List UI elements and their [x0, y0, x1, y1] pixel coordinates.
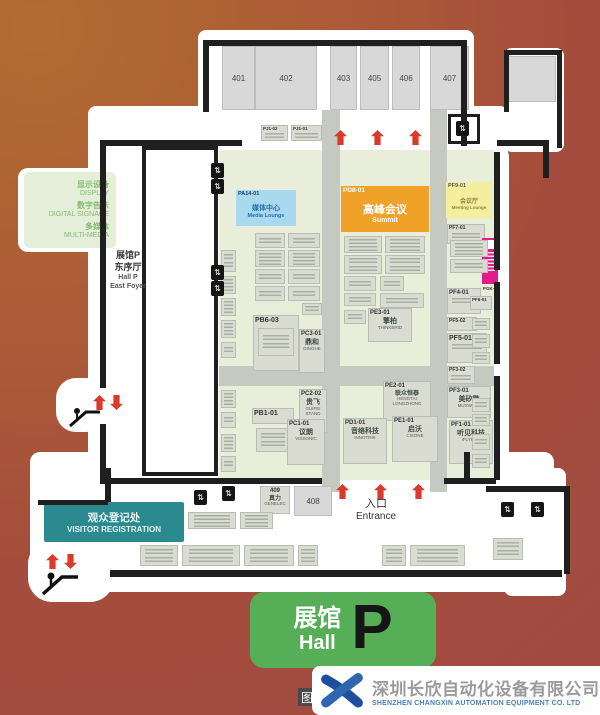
elevator-icon: ⇅ [211, 265, 224, 280]
booth-small [240, 512, 273, 529]
booth-small [140, 545, 178, 566]
elevator-icon: ⇅ [222, 486, 235, 501]
elevator-icon: ⇅ [211, 163, 224, 178]
booth-pd1-01: PD1-01 音络科技 INNOTRIK [343, 418, 387, 464]
booth-pj1-02: PJ1-02 [261, 125, 288, 141]
wall [106, 478, 322, 484]
booth-small [385, 255, 425, 274]
booth-small [221, 456, 236, 472]
booth-small [221, 434, 236, 452]
room-401: 401 [222, 46, 255, 110]
booth-small [472, 318, 490, 330]
wall [203, 40, 209, 112]
booth-small [380, 276, 404, 291]
booth-small [344, 293, 376, 306]
escalator-icon [38, 568, 86, 603]
booth-small [385, 236, 425, 253]
booth-small [221, 342, 236, 358]
booth-small [182, 545, 240, 566]
booth-pc1-01: PC1-01 议朗 VISSONIC [287, 419, 325, 465]
room-top-right [506, 56, 556, 102]
booth-small [255, 286, 285, 301]
booth-small [472, 398, 490, 412]
wall [494, 152, 500, 270]
booth-small [344, 310, 366, 324]
booth-small [298, 545, 318, 566]
room-403: 403 [330, 46, 357, 110]
hall-letter: P [351, 600, 392, 656]
floor-map: 显示设备 DISPLAY 数字告示 DIGITAL SIGNAGE 多媒体 MU… [0, 0, 600, 715]
company-name-cn: 深圳长欣自动化设备有限公司 [372, 675, 600, 700]
booth-pc3-01: PC3-01 鼎和 DINGHE [299, 329, 325, 373]
booth-small [450, 240, 488, 257]
meeting-lounge-cn: 会议厅 [460, 196, 478, 205]
booth-small [344, 236, 382, 253]
booth-small [344, 276, 376, 291]
booth-small [256, 428, 290, 452]
summit-cn: 高峰会议 [363, 201, 407, 217]
elevator-icon: ⇅ [531, 502, 544, 517]
booth-small [244, 545, 294, 566]
booth-pf3-02: PF3-02 [447, 366, 475, 384]
meeting-lounge-code: PF9-01 [448, 183, 466, 189]
wall [105, 468, 111, 502]
booth-small [493, 538, 523, 560]
room-409-genelec: 409 真力 GENELEC [260, 486, 290, 514]
company-footer: 深圳长欣自动化设备有限公司 SHENZHEN CHANGXIN AUTOMATI… [312, 666, 600, 715]
room-405: 405 [360, 46, 389, 110]
elevator-icon: ⇅ [456, 121, 469, 136]
visitor-registration: 观众登记处 VISITOR REGISTRATION [44, 502, 184, 542]
company-logo [316, 669, 368, 713]
booth-pgk-02: PGK-02 [478, 286, 504, 291]
wall [203, 40, 467, 46]
aisle-pillar [322, 110, 340, 150]
booth-small [221, 320, 236, 338]
summit-code: PD8-01 [343, 187, 365, 194]
hall-p-sign: 展馆 Hall P [250, 592, 436, 668]
booth-small [288, 269, 320, 284]
booth-small [380, 293, 424, 308]
wall [110, 570, 562, 577]
aisle-pillar [430, 110, 447, 150]
media-lounge-code: PA14-01 [238, 191, 259, 197]
room-402: 402 [255, 46, 317, 110]
wall [100, 140, 106, 388]
wall [100, 140, 242, 146]
wall [504, 50, 509, 112]
hall-sign-en: Hall [299, 632, 336, 654]
booth-small [472, 352, 490, 364]
booth-small [221, 412, 236, 428]
summit-room: PD8-01 高峰会议 Summit [341, 186, 429, 232]
booth-small [255, 233, 285, 248]
booth-small [255, 269, 285, 284]
booth-small [221, 298, 236, 316]
elevator-icon: ⇅ [211, 281, 224, 296]
east-foyer-label: 展馆P 东序厅 Hall P East Foyer [102, 250, 154, 292]
entrance-label: 入口 Entrance [344, 498, 408, 523]
booth-small [288, 286, 320, 301]
booth-small [344, 255, 382, 274]
booth-pj1-01: PJ1-01 [291, 125, 322, 141]
wall [444, 478, 496, 484]
elevator-icon: ⇅ [501, 502, 514, 517]
booth-small [302, 303, 322, 315]
booth-pb6-03: PB6-03 [253, 315, 299, 371]
booth-small [472, 454, 490, 468]
foyer-structure [142, 146, 218, 476]
booth-small [288, 233, 320, 248]
booth-small [472, 334, 490, 348]
company-name-en: SHENZHEN CHANGXIN AUTOMATION EQUIPMENT C… [372, 700, 600, 707]
booth-small [188, 512, 236, 529]
booth-small [410, 545, 465, 566]
wall [494, 376, 500, 480]
booth-small [472, 434, 490, 450]
booth-pe3-01: PE3-01 擎柏 THINKBRID [368, 308, 412, 342]
media-lounge: PA14-01 媒体中心 Media Lounge [236, 190, 296, 226]
wall [564, 486, 570, 574]
booth-pe2-01: PE2-01 联众恒泰 HENGTAI LONGZHONG [383, 381, 431, 421]
summit-en: Summit [372, 217, 398, 224]
media-lounge-en: Media Lounge [248, 213, 285, 219]
media-lounge-cn: 媒体中心 [252, 203, 280, 213]
meeting-lounge: PF9-01 会议厅 Meeting Lounge [446, 182, 492, 218]
wall [494, 282, 500, 364]
booth-small [382, 545, 406, 566]
room-406: 406 [392, 46, 420, 110]
room-408: 408 [294, 486, 332, 516]
wall [543, 146, 549, 178]
wall [504, 50, 562, 55]
booth-pe1-01: PE1-01 启沃 CISONE [392, 416, 438, 462]
hall-sign-cn: 展馆 [293, 606, 341, 632]
booth-small [221, 390, 236, 408]
booth-small [255, 250, 285, 267]
booth-pf6-01: PF6-01 [470, 296, 492, 310]
wall [38, 500, 108, 505]
elevator-icon: ⇅ [194, 490, 207, 505]
wall [497, 140, 549, 146]
elevator-icon: ⇅ [211, 179, 224, 194]
wall [557, 50, 562, 148]
booth-small [288, 250, 320, 267]
booth-small [472, 414, 490, 426]
booth-small [450, 259, 488, 273]
wall [486, 486, 570, 492]
wall [464, 452, 470, 480]
meeting-lounge-en: Meeting Lounge [452, 205, 487, 210]
